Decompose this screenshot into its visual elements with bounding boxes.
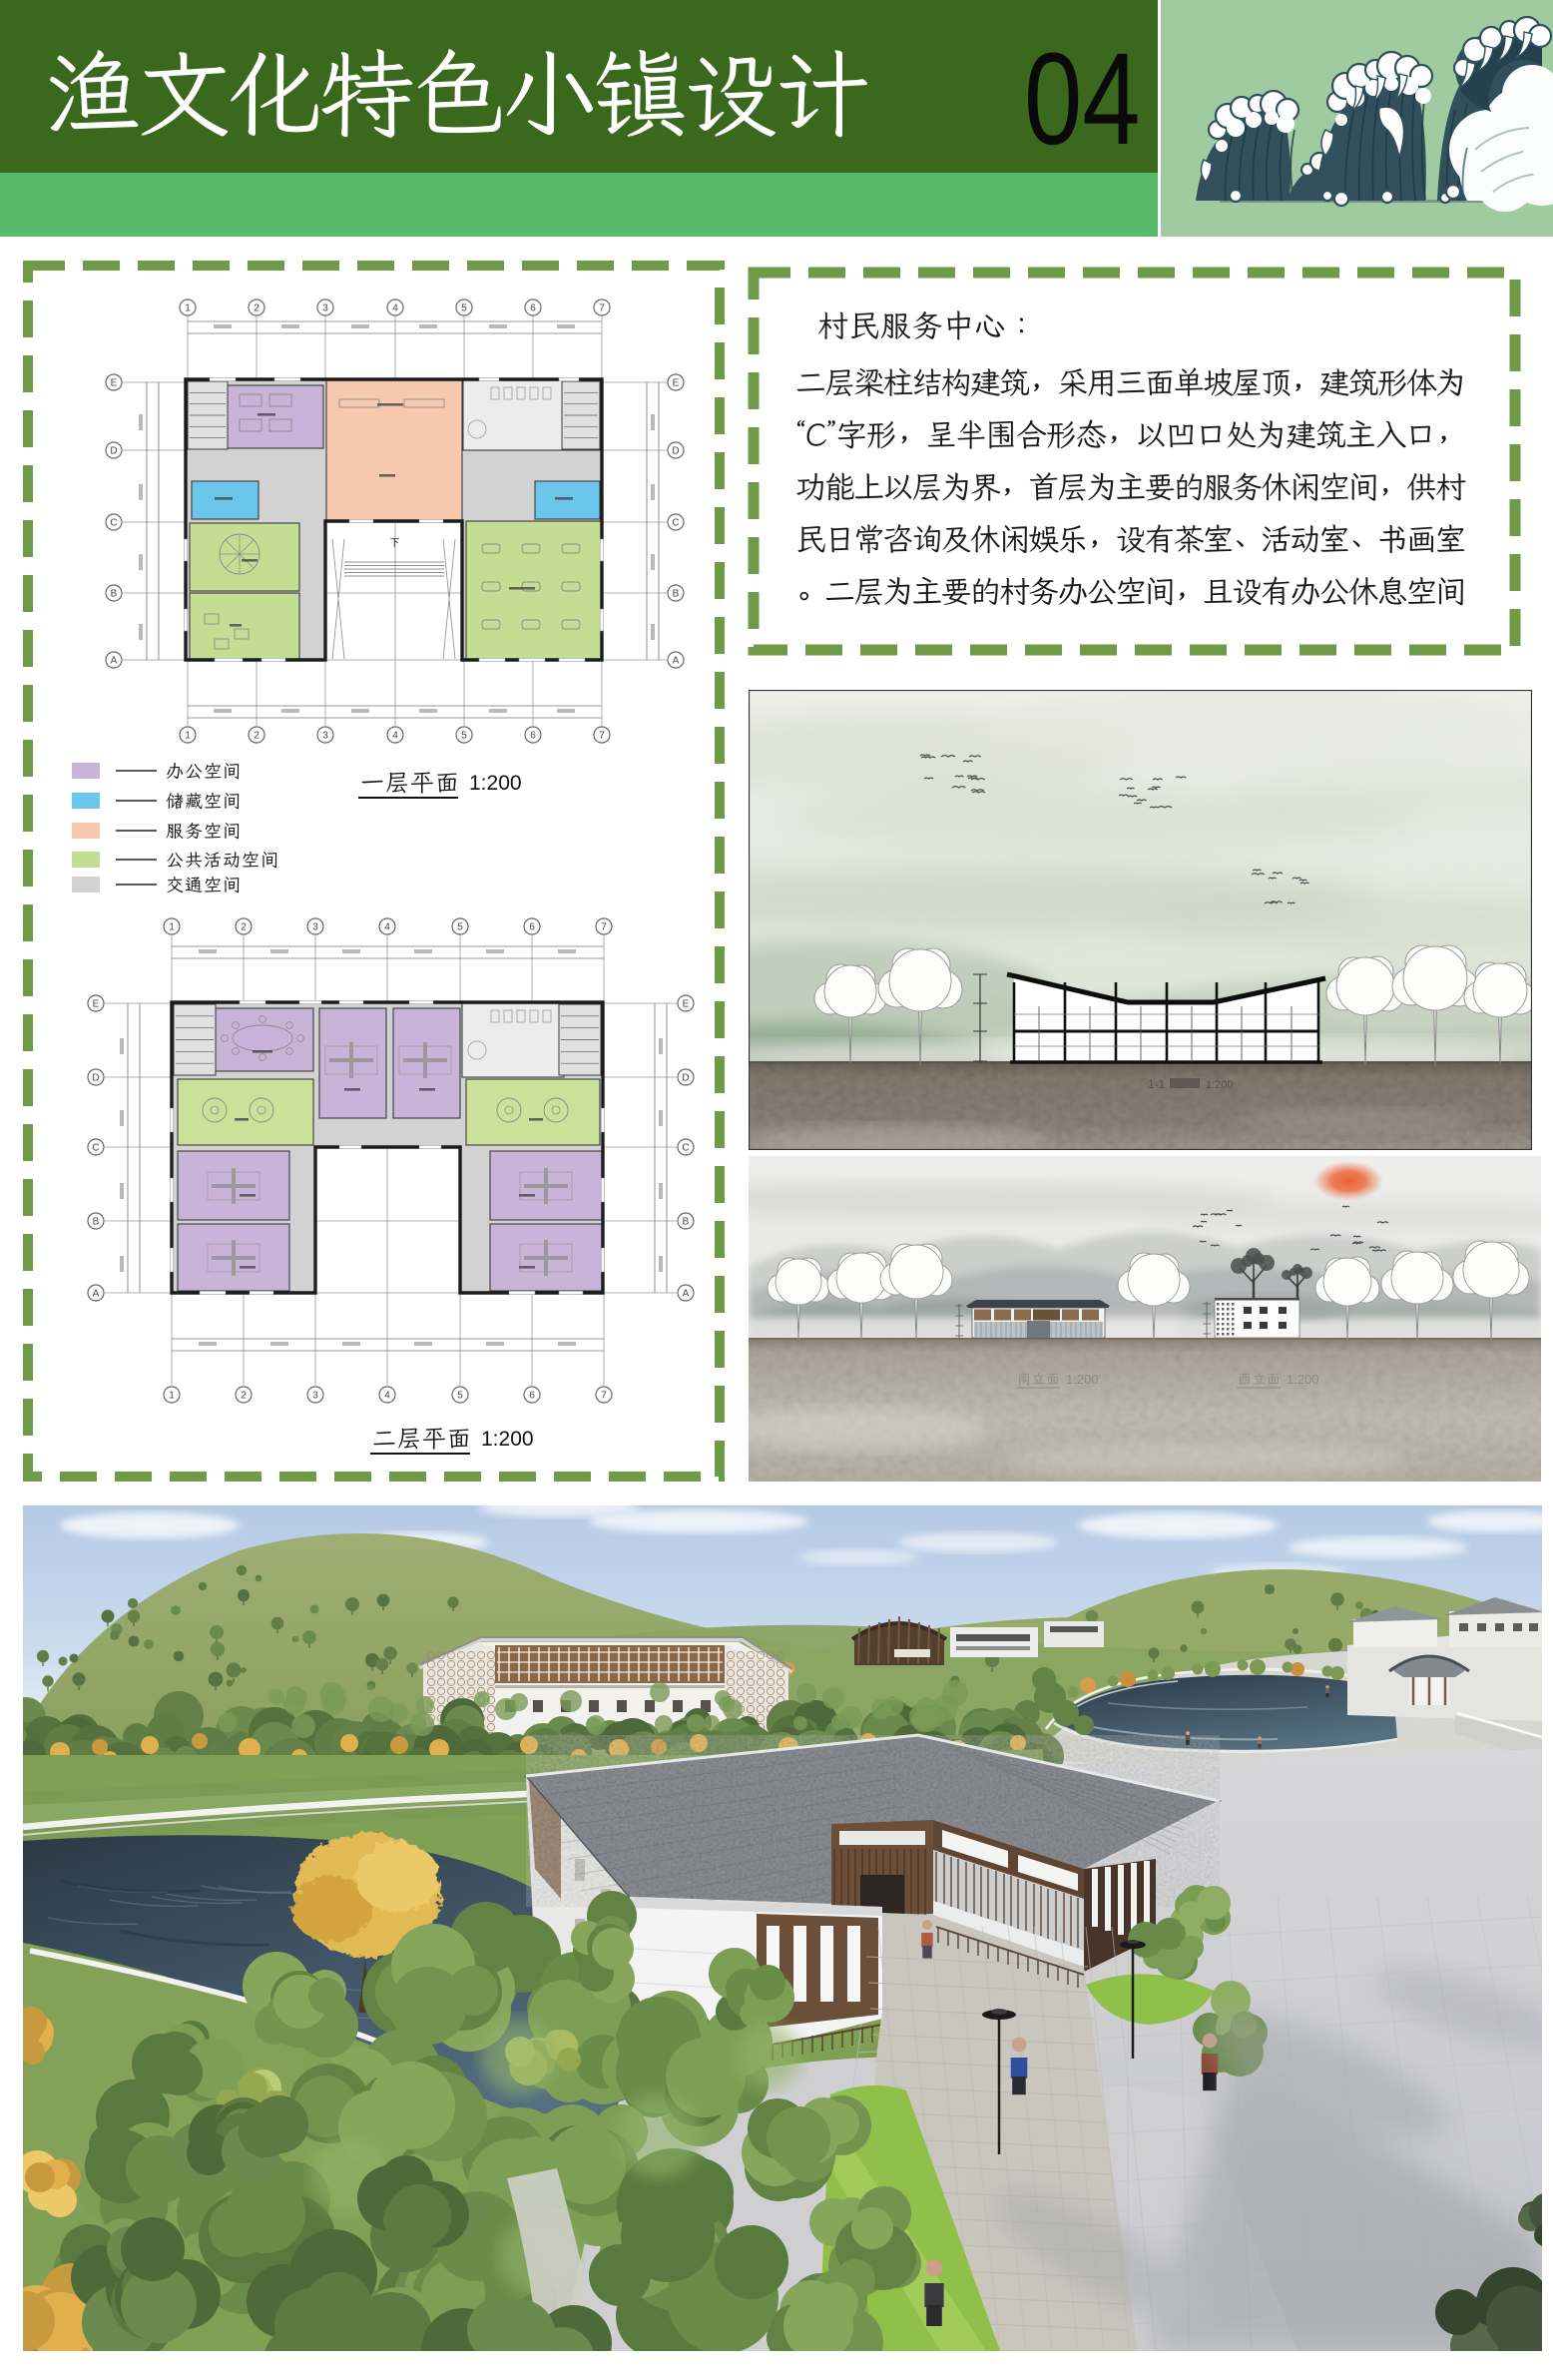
- svg-text:A: A: [673, 656, 680, 667]
- svg-text:2: 2: [241, 922, 247, 933]
- svg-text:3: 3: [312, 1391, 318, 1402]
- svg-text:B: B: [683, 1217, 690, 1228]
- svg-text:3: 3: [312, 922, 318, 933]
- svg-text:B: B: [673, 589, 680, 600]
- svg-text:1:200: 1:200: [481, 1428, 534, 1451]
- svg-text:E: E: [683, 999, 690, 1010]
- svg-text:1:200: 1:200: [1287, 1372, 1319, 1387]
- svg-text:7: 7: [601, 922, 607, 933]
- svg-text:5: 5: [457, 922, 463, 933]
- svg-text:A: A: [683, 1289, 690, 1300]
- svg-text:D: D: [672, 446, 679, 457]
- svg-text:2: 2: [241, 1391, 247, 1402]
- svg-text:A: A: [93, 1289, 100, 1300]
- svg-text:D: D: [92, 1073, 99, 1084]
- svg-text:B: B: [93, 1217, 100, 1228]
- svg-text:C: C: [682, 1143, 689, 1154]
- svg-text:C: C: [110, 518, 117, 529]
- svg-text:1: 1: [185, 731, 191, 742]
- svg-text:4: 4: [384, 1391, 390, 1402]
- svg-text:6: 6: [529, 1391, 535, 1402]
- svg-text:6: 6: [530, 303, 536, 314]
- svg-text:04: 04: [1024, 27, 1141, 173]
- svg-text:2: 2: [254, 731, 259, 742]
- svg-text:4: 4: [384, 922, 390, 933]
- svg-text:4: 4: [392, 303, 398, 314]
- svg-text:D: D: [682, 1073, 689, 1084]
- svg-text:1-1: 1-1: [1148, 1077, 1166, 1091]
- svg-text:E: E: [93, 999, 100, 1010]
- svg-text:1:200: 1:200: [1206, 1079, 1234, 1091]
- svg-text:E: E: [111, 378, 118, 389]
- svg-text:E: E: [673, 378, 680, 389]
- svg-text:4: 4: [392, 731, 398, 742]
- svg-text:6: 6: [529, 922, 535, 933]
- svg-text:3: 3: [322, 731, 328, 742]
- svg-text:7: 7: [599, 731, 605, 742]
- svg-text:5: 5: [461, 731, 467, 742]
- svg-text:1:200: 1:200: [469, 772, 522, 795]
- svg-text:1: 1: [169, 922, 175, 933]
- svg-text:6: 6: [530, 731, 536, 742]
- svg-text:A: A: [111, 656, 118, 667]
- svg-text:C: C: [672, 518, 679, 529]
- svg-text:2: 2: [254, 303, 259, 314]
- svg-text:3: 3: [322, 303, 328, 314]
- svg-text:1:200: 1:200: [1066, 1372, 1099, 1387]
- svg-text:B: B: [111, 589, 118, 600]
- svg-text:D: D: [110, 446, 117, 457]
- svg-text:C: C: [92, 1143, 99, 1154]
- svg-text:1: 1: [169, 1391, 175, 1402]
- svg-text:7: 7: [601, 1391, 607, 1402]
- svg-text:5: 5: [457, 1391, 463, 1402]
- svg-text:5: 5: [461, 303, 467, 314]
- svg-text:1: 1: [185, 303, 191, 314]
- svg-text:7: 7: [599, 303, 605, 314]
